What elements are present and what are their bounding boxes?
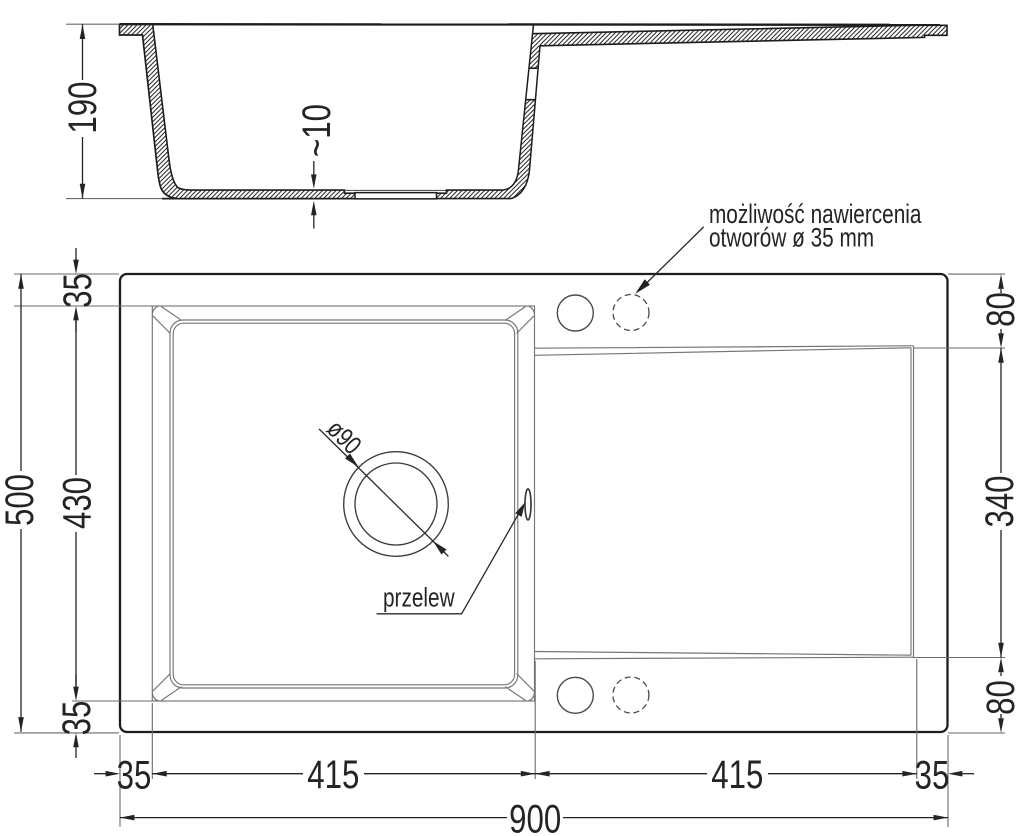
svg-text:35: 35 — [915, 753, 950, 798]
svg-text:415: 415 — [711, 752, 763, 797]
svg-text:80: 80 — [978, 680, 1023, 715]
svg-text:~10: ~10 — [294, 104, 339, 157]
svg-text:340: 340 — [977, 475, 1022, 527]
svg-text:35: 35 — [117, 753, 152, 798]
svg-text:ø90: ø90 — [321, 414, 367, 460]
svg-text:przelew: przelew — [383, 583, 455, 613]
svg-text:80: 80 — [978, 292, 1023, 327]
svg-text:35: 35 — [55, 273, 100, 308]
svg-text:415: 415 — [307, 752, 359, 797]
svg-text:35: 35 — [54, 701, 99, 736]
svg-text:otworów ø 35 mm: otworów ø 35 mm — [709, 223, 874, 253]
svg-text:190: 190 — [60, 82, 105, 134]
svg-text:900: 900 — [509, 797, 561, 836]
svg-text:500: 500 — [0, 474, 42, 526]
svg-text:430: 430 — [55, 477, 100, 529]
